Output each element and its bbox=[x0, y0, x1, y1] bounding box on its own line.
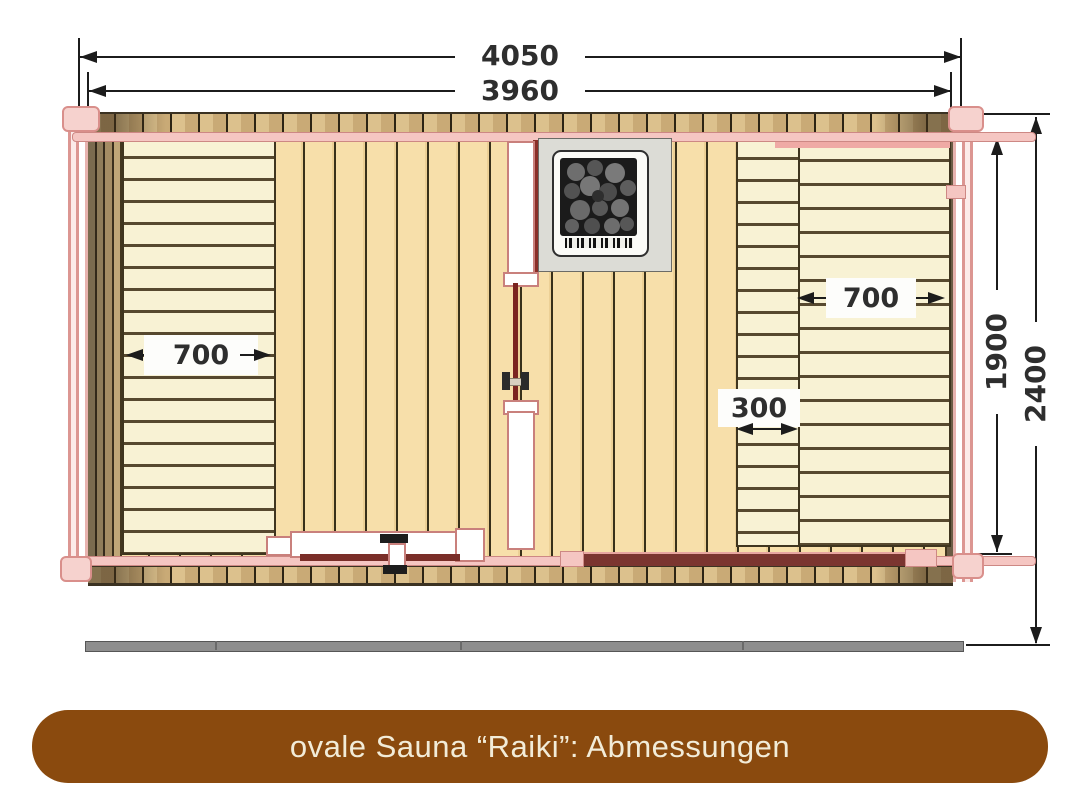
exterior-door-left-tab bbox=[266, 536, 292, 556]
dim-step-arrow-right bbox=[781, 423, 798, 435]
dim-outer-length-ext-right bbox=[960, 38, 962, 115]
exterior-door-handle-icon bbox=[380, 534, 408, 543]
dim-step-shaft bbox=[751, 428, 783, 430]
dim-inner-width-arrow-bottom bbox=[991, 535, 1003, 552]
bench-right-main bbox=[798, 138, 951, 547]
door-cross-top bbox=[503, 272, 539, 287]
door-top-leaf bbox=[507, 141, 535, 279]
dim-outer-width-label: 2400 bbox=[1022, 345, 1050, 423]
page-background: 4050 3960 1900 2400 bbox=[0, 0, 1080, 800]
heater-vent-grille bbox=[565, 238, 633, 248]
dim-inner-length-arrow-left bbox=[89, 85, 106, 97]
wall-bottom-boards bbox=[88, 565, 953, 586]
door-handle-icon bbox=[502, 372, 510, 390]
door-threshold-strip bbox=[300, 554, 460, 561]
wall-right-band bbox=[953, 112, 973, 582]
corner-tab-bottom-left bbox=[60, 556, 92, 582]
skid-joint bbox=[215, 641, 217, 650]
dim-outer-length-arrow-right bbox=[944, 51, 961, 63]
beam-connector-right bbox=[905, 549, 937, 567]
dim-outer-length-arrow-left bbox=[80, 51, 97, 63]
exterior-door-pin-cap bbox=[383, 565, 407, 574]
dim-inner-width-label: 1900 bbox=[983, 313, 1011, 391]
dim-bench-left-arrow-right bbox=[254, 349, 271, 361]
dim-outer-length-label: 4050 bbox=[455, 36, 585, 76]
sauna-heater-stones-icon bbox=[560, 158, 637, 236]
wall-connector-right-top bbox=[946, 185, 966, 199]
dim-outer-width-labelbox: 2400 bbox=[1016, 322, 1056, 446]
dim-bench-right-shaft-left bbox=[812, 297, 826, 299]
skid-joint bbox=[460, 641, 462, 650]
wall-left-band bbox=[68, 112, 88, 582]
page-title: ovale Sauna “Raiki”: Abmessungen bbox=[290, 729, 790, 765]
dim-outer-width-arrow-bottom bbox=[1030, 627, 1042, 644]
dim-bench-right-label: 700 bbox=[826, 278, 916, 318]
dim-bench-right-arrow-right bbox=[928, 292, 945, 304]
wall-curve-left bbox=[88, 138, 122, 557]
beam-connector-left bbox=[560, 551, 584, 567]
door-handle-icon bbox=[521, 372, 529, 390]
door-bottom-leaf bbox=[507, 411, 535, 550]
dim-outer-width-ext-bottom bbox=[966, 644, 1050, 646]
bench-support-beam bbox=[578, 552, 910, 566]
title-banner: ovale Sauna “Raiki”: Abmessungen bbox=[32, 710, 1048, 783]
dim-inner-length-arrow-right bbox=[934, 85, 951, 97]
corner-tab-top-left bbox=[62, 106, 100, 132]
dim-outer-width-ext-top bbox=[974, 113, 1050, 115]
corner-tab-top-right bbox=[948, 106, 984, 132]
dim-inner-length-label: 3960 bbox=[455, 71, 585, 110]
skid-joint bbox=[742, 641, 744, 650]
dim-inner-width-labelbox: 1900 bbox=[977, 290, 1017, 414]
corner-tab-bottom-right bbox=[952, 553, 984, 579]
bench-right-step bbox=[736, 138, 802, 547]
dim-step-label: 300 bbox=[718, 389, 800, 427]
